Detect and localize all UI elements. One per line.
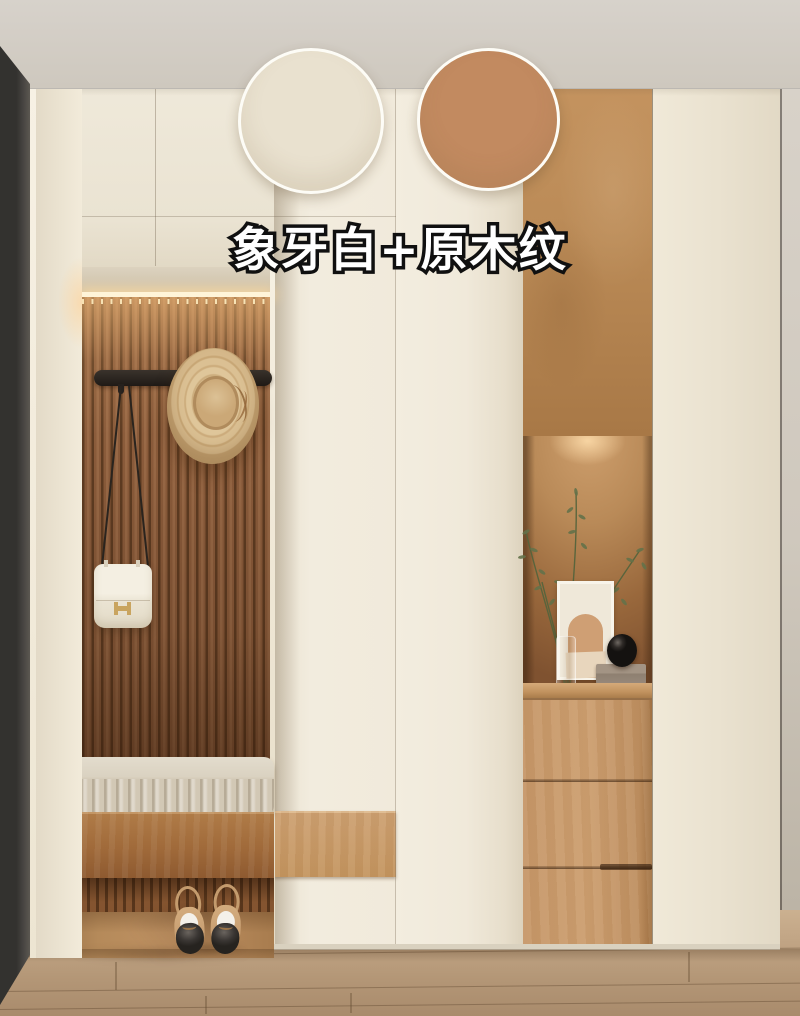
decor-box xyxy=(596,664,646,684)
niche-counter xyxy=(523,683,652,700)
floor-plank-joint xyxy=(205,996,207,1014)
heel-shoe-left xyxy=(170,885,208,955)
ceiling xyxy=(0,0,800,89)
led-dots xyxy=(82,299,272,304)
drawer-seam xyxy=(523,779,652,782)
color-swatch-wood xyxy=(417,48,560,191)
handbag-tab xyxy=(104,560,108,567)
cabinet-drawer-middle-wood xyxy=(274,811,396,877)
drawer-gap xyxy=(600,864,652,870)
dark-door-edge xyxy=(0,46,30,1016)
entryway-photo: 象牙白+原木纹 xyxy=(0,0,800,1016)
decor-sphere xyxy=(607,634,637,667)
right-wall xyxy=(780,84,800,910)
handbag xyxy=(94,564,152,628)
shoe-bow xyxy=(219,923,233,930)
handbag-clasp xyxy=(114,602,131,615)
floor-plank-joint xyxy=(350,993,352,1013)
handbag-flap-line xyxy=(96,600,150,601)
overlay-title: 象牙白+原木纹 xyxy=(0,211,800,280)
handbag-tab xyxy=(136,560,140,567)
heel-shoe-right xyxy=(207,883,245,954)
color-swatch-ivory xyxy=(238,48,384,194)
drawer-stack xyxy=(523,700,652,947)
